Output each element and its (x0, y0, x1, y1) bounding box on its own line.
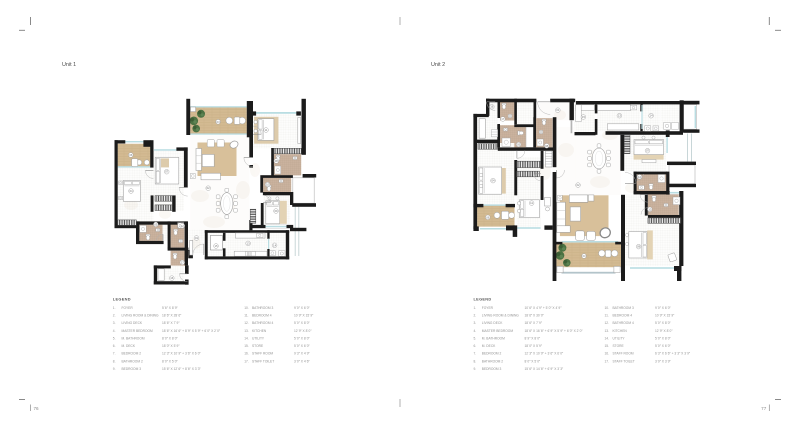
svg-text:UTILITY: UTILITY (252, 336, 265, 340)
svg-text:13: 13 (247, 241, 251, 245)
svg-text:10: 10 (266, 183, 270, 187)
svg-text:11: 11 (530, 201, 533, 205)
svg-text:18´6″ X 7´9″: 18´6″ X 7´9″ (525, 321, 543, 325)
svg-text:16: 16 (170, 276, 174, 280)
svg-text:KITCHEN: KITCHEN (613, 329, 628, 333)
svg-text:1.: 1. (474, 306, 477, 310)
svg-text:2.: 2. (113, 313, 116, 317)
svg-text:BATHROOM 3: BATHROOM 3 (252, 306, 273, 310)
svg-text:8.: 8. (113, 359, 116, 363)
svg-text:BEDROOM 4: BEDROOM 4 (613, 313, 633, 317)
svg-text:LIVING DECK: LIVING DECK (122, 321, 143, 325)
svg-text:M. DECK: M. DECK (122, 344, 136, 348)
svg-text:9´3″ X 4´9″: 9´3″ X 4´9″ (294, 352, 311, 356)
svg-text:3´9″ X 3´9″: 3´9″ X 3´9″ (655, 359, 672, 363)
svg-text:13.: 13. (244, 329, 249, 333)
svg-text:03: 03 (217, 120, 221, 124)
svg-text:17.: 17. (605, 359, 610, 363)
svg-text:10: 10 (648, 207, 652, 211)
svg-text:9´0″ X 6´0″: 9´0″ X 6´0″ (294, 306, 311, 310)
svg-text:KITCHEN: KITCHEN (252, 329, 267, 333)
svg-text:10.: 10. (605, 306, 610, 310)
svg-text:11.: 11. (605, 313, 609, 317)
svg-text:05: 05 (154, 222, 158, 226)
svg-text:14: 14 (650, 114, 654, 118)
svg-text:17: 17 (501, 117, 505, 121)
svg-text:7.: 7. (474, 352, 477, 356)
svg-text:15.: 15. (605, 344, 610, 348)
svg-text:17: 17 (181, 260, 185, 264)
svg-text:16.: 16. (605, 352, 610, 356)
svg-text:15: 15 (214, 244, 218, 248)
svg-text:8´0″ X 5´0″: 8´0″ X 5´0″ (525, 359, 542, 363)
svg-text:5´0″ X 6´0″: 5´0″ X 6´0″ (294, 344, 311, 348)
svg-text:11.: 11. (244, 313, 248, 317)
svg-text:13: 13 (618, 114, 622, 118)
svg-text:Unit 2: Unit 2 (431, 62, 445, 68)
svg-text:08: 08 (545, 144, 549, 148)
svg-text:14: 14 (273, 243, 277, 247)
svg-text:04: 04 (129, 189, 133, 193)
svg-text:09: 09 (637, 245, 641, 249)
svg-text:02: 02 (207, 186, 211, 190)
svg-text:12´3″ X 10´9″ + 3´6″ X 6´0″: 12´3″ X 10´9″ + 3´6″ X 6´0″ (162, 352, 202, 356)
svg-text:2.: 2. (474, 313, 477, 317)
svg-text:6´3″ X 6´6″ + 3´3″ X 3´9″: 6´3″ X 6´6″ + 3´3″ X 3´9″ (655, 352, 691, 356)
svg-text:10.: 10. (244, 306, 249, 310)
svg-text:5´0″ X 8´0″: 5´0″ X 8´0″ (655, 336, 672, 340)
svg-text:STORE: STORE (613, 344, 625, 348)
svg-text:M. BATHROOM: M. BATHROOM (122, 336, 145, 340)
svg-text:M. DECK: M. DECK (482, 344, 496, 348)
svg-text:STAFF ROOM: STAFF ROOM (613, 352, 634, 356)
svg-text:01: 01 (195, 236, 199, 240)
svg-text:8.: 8. (474, 359, 477, 363)
svg-text:9.: 9. (113, 367, 116, 371)
svg-text:BATHROOM 2: BATHROOM 2 (482, 359, 503, 363)
svg-text:4.: 4. (113, 329, 116, 333)
svg-text:5´0″ X 6´0″: 5´0″ X 6´0″ (655, 344, 672, 348)
svg-text:STORE: STORE (252, 344, 264, 348)
svg-text:BATHROOM 2: BATHROOM 2 (122, 359, 143, 363)
svg-text:6.: 6. (113, 344, 116, 348)
svg-text:5´0″ X 8´0″: 5´0″ X 8´0″ (294, 321, 311, 325)
svg-text:02: 02 (576, 183, 580, 187)
svg-text:12.: 12. (605, 321, 610, 325)
svg-text:16.: 16. (244, 352, 249, 356)
svg-text:8´0″ X 8´0″: 8´0″ X 8´0″ (162, 336, 179, 340)
svg-text:STAFF TOILET: STAFF TOILET (252, 359, 274, 363)
svg-text:5.: 5. (474, 336, 477, 340)
svg-text:3´0″ X 4´6″: 3´0″ X 4´6″ (294, 359, 311, 363)
svg-text:11: 11 (265, 128, 268, 132)
svg-text:10´6″ X 4´9″ + 5´0″ X 4´9″: 10´6″ X 4´9″ + 5´0″ X 4´9″ (525, 306, 563, 310)
svg-text:MASTER BEDROOM: MASTER BEDROOM (482, 329, 514, 333)
svg-text:18´6″ X 16´6″ + 6´9″ X 5´9″ +: 18´6″ X 16´6″ + 6´9″ X 5´9″ + 6´0″ X 2´0… (525, 329, 584, 333)
svg-text:04: 04 (491, 179, 495, 183)
svg-text:1.: 1. (113, 306, 116, 310)
svg-text:17.: 17. (244, 359, 249, 363)
svg-text:6.: 6. (474, 344, 477, 348)
svg-text:FOYER: FOYER (122, 306, 134, 310)
svg-text:M. BATHROOM: M. BATHROOM (482, 336, 505, 340)
svg-text:01: 01 (556, 108, 560, 112)
svg-text:06: 06 (129, 153, 133, 157)
svg-text:8´9″ X 8´0″: 8´9″ X 8´0″ (525, 336, 542, 340)
svg-text:BATHROOM 4: BATHROOM 4 (613, 321, 634, 325)
svg-text:18´6″ X 16´6″ + 8´9″ X 5´9″ +: 18´6″ X 16´6″ + 8´9″ X 5´9″ + 6´0″ X 2´0… (162, 329, 221, 333)
svg-text:15.: 15. (244, 344, 249, 348)
svg-text:03: 03 (582, 254, 586, 258)
svg-text:12´9″ X 8´0″: 12´9″ X 8´0″ (294, 329, 312, 333)
svg-text:8´0″ X 5´0″: 8´0″ X 5´0″ (162, 359, 179, 363)
svg-text:12´9″ X 8´0″: 12´9″ X 8´0″ (655, 329, 673, 333)
svg-text:UTILITY: UTILITY (613, 336, 626, 340)
svg-text:14.: 14. (605, 336, 610, 340)
svg-text:3.: 3. (113, 321, 116, 325)
svg-text:05: 05 (517, 143, 521, 147)
svg-text:9´0″ X 6´0″: 9´0″ X 6´0″ (655, 306, 672, 310)
svg-text:15´6″ X 12´6″ + 8´6″ X 3´3″: 15´6″ X 12´6″ + 8´6″ X 3´3″ (162, 367, 202, 371)
svg-text:12: 12 (181, 224, 185, 228)
svg-text:13.: 13. (605, 329, 610, 333)
svg-text:BEDROOM 2: BEDROOM 2 (122, 352, 142, 356)
svg-text:10´9″ X 15´9″: 10´9″ X 15´9″ (294, 313, 314, 317)
svg-text:18´6″ X 30´0″: 18´6″ X 30´0″ (525, 313, 545, 317)
svg-text:MASTER BEDROOM: MASTER BEDROOM (122, 329, 154, 333)
svg-text:12: 12 (638, 175, 642, 179)
svg-text:LIVING ROOM & DINING: LIVING ROOM & DINING (482, 313, 519, 317)
svg-text:BEDROOM 3: BEDROOM 3 (122, 367, 142, 371)
svg-text:18´0″ X 5´9″: 18´0″ X 5´9″ (525, 344, 543, 348)
svg-text:77: 77 (761, 406, 767, 411)
svg-text:3.: 3. (474, 321, 477, 325)
svg-text:16: 16 (490, 105, 494, 109)
svg-text:LEGEND: LEGEND (474, 297, 492, 302)
svg-text:FOYER: FOYER (482, 306, 494, 310)
svg-text:4.: 4. (474, 329, 477, 333)
svg-text:18´6″ X 28´6″: 18´6″ X 28´6″ (162, 313, 182, 317)
svg-text:06: 06 (486, 215, 490, 219)
svg-text:BATHROOM 4: BATHROOM 4 (252, 321, 273, 325)
svg-text:15´6″ X 14´6″ + 6´9″ X 3´3″: 15´6″ X 14´6″ + 6´9″ X 3´3″ (525, 367, 565, 371)
svg-text:5.: 5. (113, 336, 116, 340)
svg-text:09: 09 (274, 209, 278, 213)
svg-text:LIVING ROOM & DINING: LIVING ROOM & DINING (122, 313, 159, 317)
svg-text:BEDROOM 3: BEDROOM 3 (482, 367, 502, 371)
svg-text:LEGEND: LEGEND (113, 297, 131, 302)
svg-text:BEDROOM 4: BEDROOM 4 (252, 313, 272, 317)
svg-text:18´6″ X 7´9″: 18´6″ X 7´9″ (162, 321, 180, 325)
svg-text:5´0″ X 8´0″: 5´0″ X 8´0″ (655, 321, 672, 325)
svg-text:12.: 12. (244, 321, 249, 325)
svg-text:15: 15 (582, 115, 586, 119)
svg-text:BEDROOM 2: BEDROOM 2 (482, 352, 502, 356)
svg-text:7.: 7. (113, 352, 116, 356)
svg-text:76: 76 (34, 406, 40, 411)
svg-text:07: 07 (646, 149, 650, 153)
svg-text:BATHROOM 3: BATHROOM 3 (613, 306, 634, 310)
svg-text:12´3″ X 10´9″ + 3´6″ X 6´0″: 12´3″ X 10´9″ + 3´6″ X 6´0″ (525, 352, 565, 356)
svg-text:STAFF TOILET: STAFF TOILET (613, 359, 635, 363)
svg-text:07: 07 (165, 170, 169, 174)
svg-text:LIVING DECK: LIVING DECK (482, 321, 503, 325)
svg-text:9.: 9. (474, 367, 477, 371)
svg-text:18´0″ X 5´9″: 18´0″ X 5´9″ (162, 344, 180, 348)
svg-text:08: 08 (275, 159, 279, 163)
svg-text:14.: 14. (244, 336, 249, 340)
svg-text:5´6″ X 8´9″: 5´6″ X 8´9″ (162, 306, 179, 310)
svg-text:10´9″ X 15´9″: 10´9″ X 15´9″ (655, 313, 675, 317)
svg-text:5´0″ X 8´0″: 5´0″ X 8´0″ (294, 336, 311, 340)
svg-text:Unit 1: Unit 1 (62, 62, 76, 68)
svg-text:STAFF ROOM: STAFF ROOM (252, 352, 273, 356)
